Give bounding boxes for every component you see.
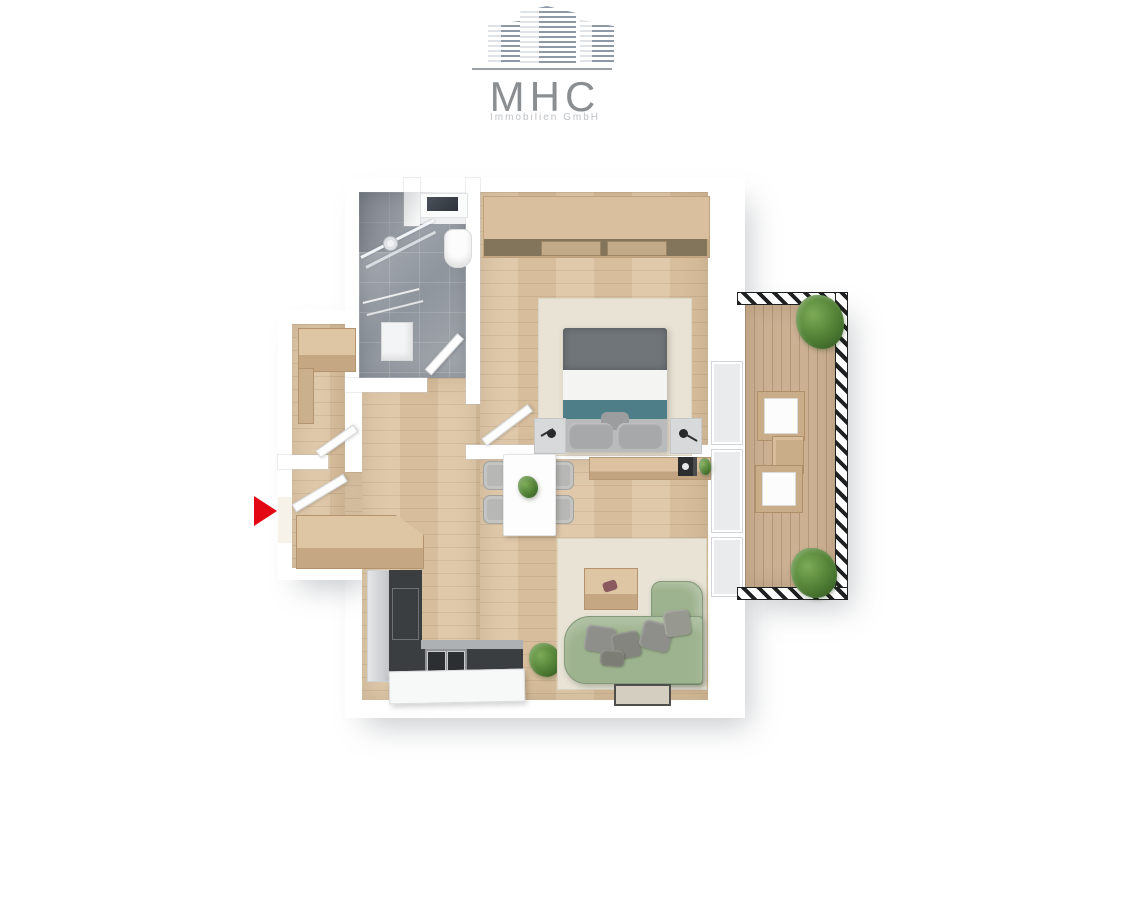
double-bed [563,328,667,452]
coffee-table [584,568,638,610]
wall-right-facade [708,178,745,718]
table-decor [602,579,618,593]
kitchen-tall-cabinet [367,570,391,682]
sofa-cushion-5 [599,649,624,667]
floorplan-page: MHC Immobilien GmbH [0,0,1125,900]
storage-shelf [298,328,356,372]
window-bedroom [712,362,742,444]
record-player [678,457,697,476]
entrance-sideboard [296,515,424,569]
bed-pillow-right [617,423,662,449]
company-logo: MHC Immobilien GmbH [460,4,630,122]
wardrobe-sliding-door [541,241,601,256]
buildings-icon [460,4,630,66]
building-middle-icon [520,6,576,64]
wall-bathroom-hall [345,378,427,392]
entry-doorway-gap [278,497,292,543]
record-disc [682,463,689,470]
kitchen-island [389,669,526,705]
doormat [614,684,671,706]
wall-bathroom-bedroom [466,178,480,404]
nightstand-right [670,418,702,454]
counter-edge [421,640,523,649]
bed-duvet-dark [563,328,667,370]
balcony-chair-2 [755,465,803,513]
window-living-upper [712,450,742,532]
bed-pillow-left [568,423,613,449]
washing-machine [381,322,413,361]
bedroom-wardrobe [483,196,710,258]
wardrobe-sliding-door-2 [607,241,667,256]
dining-table-plant [518,476,538,498]
vanity-counter [420,193,468,218]
bed-sheet [563,370,667,400]
logo-subtitle: Immobilien GmbH [460,112,630,123]
kitchen-oven-column [389,570,422,680]
lamp-arm-right [685,433,698,442]
oven-door [392,588,419,640]
balcony-chair-1 [757,391,805,441]
entrance-arrow-icon [254,496,277,526]
sofa-cushion-4 [662,608,691,637]
washbasin [427,197,458,211]
logo-divider [472,68,612,70]
storage-shelf-side [298,368,314,424]
building-right-icon [580,20,614,64]
shower-head [383,236,398,251]
toilet [444,229,472,268]
sideboard-plant [699,458,711,475]
nightstand-left [534,418,566,454]
